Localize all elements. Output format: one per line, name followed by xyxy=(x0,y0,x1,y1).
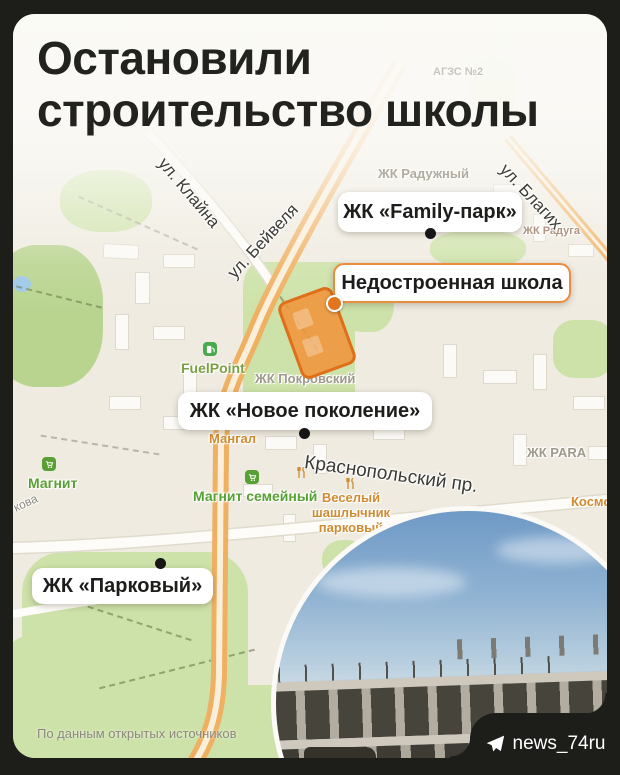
title-line1: Остановили xyxy=(37,32,539,84)
fuel-icon xyxy=(203,342,217,356)
attribution-text: По данным открытых источников xyxy=(37,726,237,741)
photo-excavator xyxy=(304,747,376,758)
marker-novoe-pokolenie xyxy=(299,428,310,439)
marker-parkovy xyxy=(155,558,166,569)
telegram-plane-icon xyxy=(485,734,505,754)
channel-name: news_74ru xyxy=(513,733,606,755)
photo-cloud xyxy=(496,537,607,563)
infographic: АГЗС №2 Остановили строительство школы у… xyxy=(0,0,620,775)
poi-kosmos: Космос xyxy=(571,494,607,509)
poi-fuelpoint: FuelPoint xyxy=(181,360,245,376)
callout-unfinished-school: Недостроенная школа xyxy=(333,263,571,303)
callout-family-park: ЖК «Family-парк» xyxy=(338,192,522,232)
poi-magnit-family: Магнит семейный xyxy=(193,488,317,504)
telegram-channel-badge: news_74ru xyxy=(470,713,620,775)
school-block xyxy=(302,335,324,358)
school-block xyxy=(292,308,314,331)
poi-raduzhny: ЖК Радужный xyxy=(378,166,469,181)
map-card: АГЗС №2 Остановили строительство школы у… xyxy=(13,14,607,758)
poi-para: ЖК PARA xyxy=(527,445,586,460)
badge-fillet xyxy=(450,736,472,758)
photo-cloud xyxy=(316,567,466,597)
poi-magnit: Магнит xyxy=(28,475,77,491)
magnit-cart-icon xyxy=(42,457,56,471)
badge-fillet xyxy=(585,693,607,715)
title-line2: строительство школы xyxy=(37,84,539,136)
magnit-cart-icon xyxy=(245,470,259,484)
marker-unfinished-school xyxy=(326,295,343,312)
marker-family-park xyxy=(425,228,436,239)
page-title: Остановили строительство школы xyxy=(37,32,539,136)
callout-parkovy: ЖК «Парковый» xyxy=(32,568,213,604)
callout-novoe-pokolenie: ЖК «Новое поколение» xyxy=(178,392,432,430)
poi-mangal: Мангал xyxy=(209,431,256,446)
